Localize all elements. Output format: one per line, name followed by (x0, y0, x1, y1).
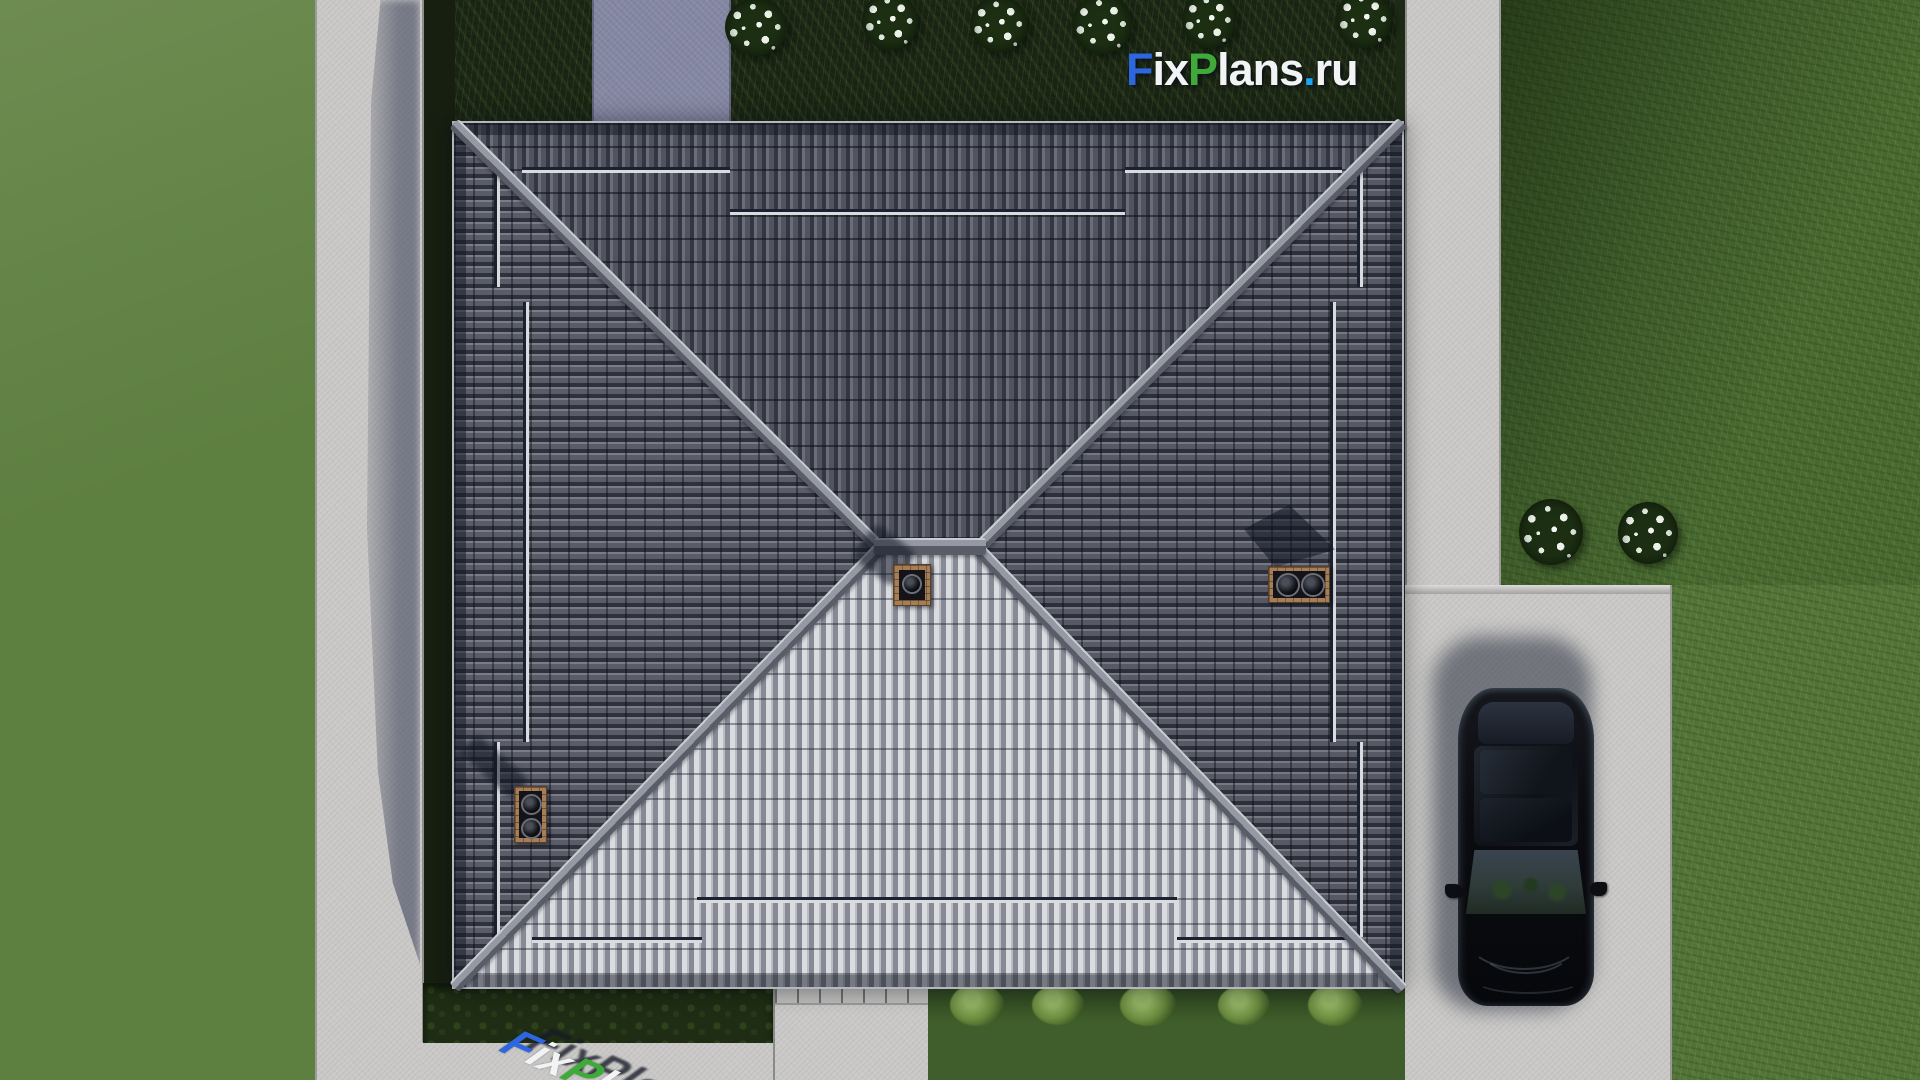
chimney-pipe (521, 818, 542, 839)
chimney-pipe (1276, 573, 1300, 597)
logo-letter: F (1126, 44, 1153, 95)
logo-letter: s (1279, 44, 1303, 95)
flower-bush (1618, 502, 1678, 564)
tree-reflection (1466, 850, 1586, 914)
snow-guard (532, 937, 702, 943)
patio-walkway (773, 985, 928, 1080)
path-right (1405, 0, 1501, 592)
chimney-pipe (521, 794, 542, 815)
car-hood-line (1480, 924, 1572, 974)
car-bumper-line (1476, 968, 1580, 994)
car-mirror-left (1445, 884, 1462, 898)
snow-guard (1330, 302, 1336, 742)
logo-letter: P (1188, 44, 1217, 95)
car-sunroof-pane (1480, 750, 1572, 794)
green-bush (950, 984, 1004, 1026)
hedge-strip (423, 983, 773, 1043)
car-sunroof-pane (1480, 798, 1572, 842)
snow-guard (1177, 937, 1347, 943)
lawn-right-bottom (1670, 585, 1920, 1080)
green-bush (1032, 985, 1084, 1025)
snow-guard (1125, 167, 1342, 173)
snow-guard (697, 897, 1177, 903)
chimney-pipe (902, 574, 922, 594)
eave-shadow-top (454, 123, 1402, 135)
eave-shadow-left (454, 123, 466, 987)
snow-guard (523, 302, 529, 742)
path-top-shadowed (592, 0, 731, 130)
snow-guard (1357, 742, 1363, 937)
logo-letter: l (1217, 44, 1229, 95)
snow-guard (730, 209, 1125, 215)
logo-letter: a (1229, 44, 1253, 95)
logo-letter: u (1331, 44, 1358, 95)
flower-bush (725, 0, 787, 56)
snow-guard (1357, 170, 1363, 287)
aerial-render-scene: FixPlans.ru FixPlans.ru FixPlans.ru (0, 0, 1920, 1080)
green-bush (1218, 985, 1270, 1025)
snow-guard (494, 170, 500, 287)
lawn-left (0, 0, 318, 1080)
logo-letter: i (1153, 44, 1165, 95)
logo-letter: r (1315, 44, 1332, 95)
chimney-left-double (514, 786, 547, 843)
house-hip-roof (452, 121, 1404, 989)
eave-shadow-bottom (454, 975, 1402, 987)
car-windshield (1466, 850, 1586, 914)
green-bush (1308, 984, 1362, 1026)
car-rear-window (1478, 702, 1574, 744)
car-roof-glass (1474, 746, 1578, 846)
logo-letter: . (1303, 44, 1315, 95)
car-mirror-right (1590, 882, 1607, 896)
logo-letter: x (1164, 44, 1188, 95)
snow-guard (522, 167, 730, 173)
driveway-bevel-edge (1405, 585, 1670, 594)
chimney-center (893, 564, 931, 606)
car (1458, 688, 1594, 1006)
flower-bush (1519, 499, 1583, 565)
green-bush (1120, 984, 1176, 1026)
logo-letter: n (1253, 44, 1280, 95)
chimney-pipe (1301, 573, 1325, 597)
brand-watermark-logo: FixPlans.ru (1126, 44, 1358, 96)
eave-shadow-right (1390, 123, 1402, 987)
chimney-right-double (1268, 566, 1330, 603)
